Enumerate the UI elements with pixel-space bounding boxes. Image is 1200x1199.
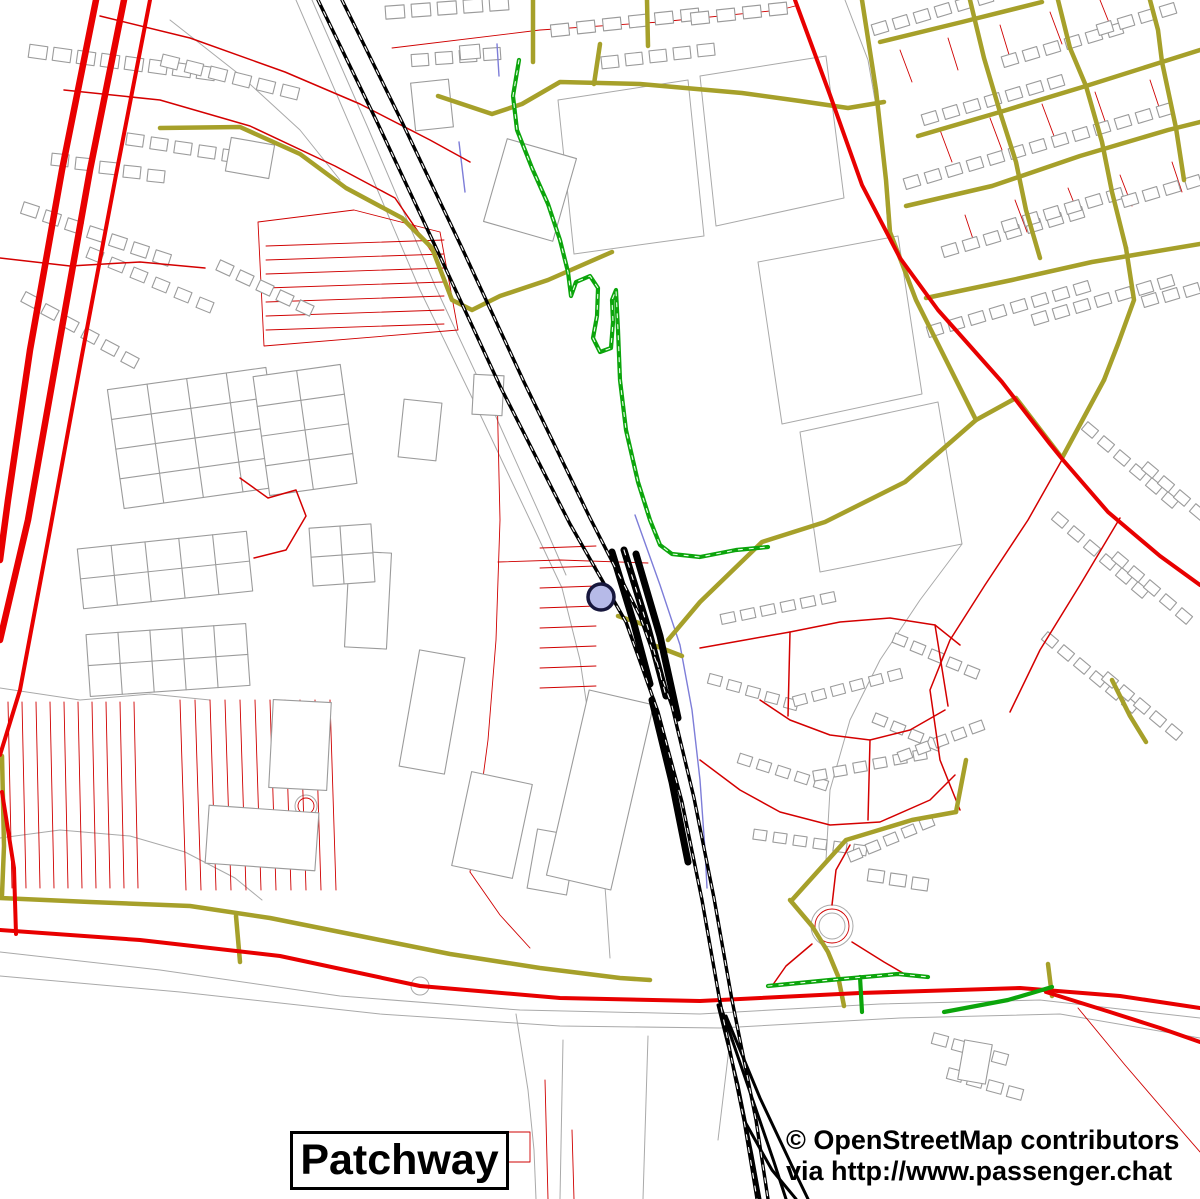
station-marker[interactable] [588,584,614,610]
place-label-box: Patchway [290,1131,509,1190]
place-label-text: Patchway [300,1136,498,1185]
attribution-line-1: © OpenStreetMap contributors [786,1125,1179,1156]
map-attribution: © OpenStreetMap contributors via http://… [786,1125,1179,1187]
map-render-layer [0,0,1200,1199]
motorway-red [0,0,124,640]
map-canvas[interactable]: Patchway © OpenStreetMap contributors vi… [0,0,1200,1199]
attribution-line-2: via http://www.passenger.chat [786,1156,1179,1187]
glasshouse-grids [77,364,375,696]
